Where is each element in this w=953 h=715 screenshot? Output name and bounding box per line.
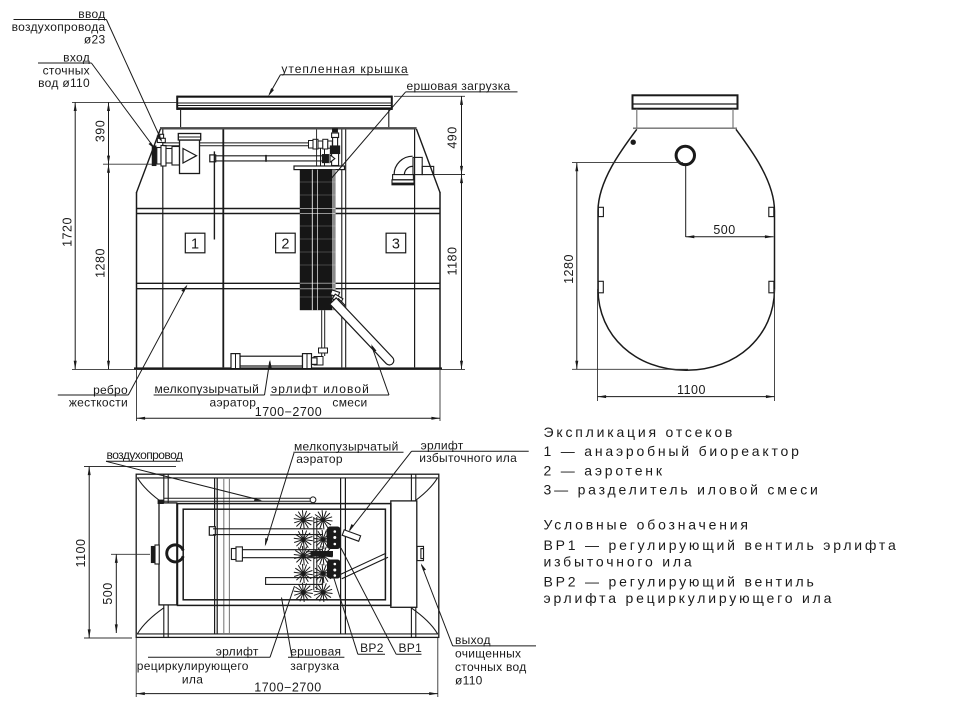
svg-text:1700−2700: 1700−2700: [255, 405, 322, 419]
svg-text:ершовая загрузка: ершовая загрузка: [407, 79, 511, 93]
svg-text:3— разделитель иловой смеси: 3— разделитель иловой смеси: [544, 482, 821, 498]
svg-text:2 — аэротенк: 2 — аэротенк: [544, 462, 665, 478]
svg-text:ввод: ввод: [78, 7, 105, 21]
svg-text:аэратор: аэратор: [296, 452, 343, 466]
svg-text:ø23: ø23: [84, 32, 106, 46]
svg-text:Условные обозначения: Условные обозначения: [544, 517, 751, 533]
svg-text:эрлифт иловой: эрлифт иловой: [271, 382, 370, 396]
svg-text:ВР1: ВР1: [399, 641, 423, 655]
svg-text:аэратор: аэратор: [210, 395, 257, 409]
svg-text:1280: 1280: [94, 248, 108, 278]
svg-text:500: 500: [713, 223, 735, 237]
svg-text:сточных вод: сточных вод: [455, 660, 527, 674]
svg-text:3: 3: [392, 237, 400, 253]
svg-text:1100: 1100: [74, 539, 88, 568]
svg-text:1280: 1280: [562, 254, 576, 284]
svg-text:1720: 1720: [61, 217, 75, 247]
svg-text:мелкопузырчатый: мелкопузырчатый: [155, 382, 260, 396]
svg-text:1100: 1100: [677, 383, 706, 397]
svg-text:вод ø110: вод ø110: [38, 76, 90, 90]
svg-text:1: 1: [191, 237, 199, 253]
svg-text:390: 390: [94, 120, 108, 142]
svg-text:очищенных: очищенных: [455, 647, 521, 661]
svg-text:ВР2: ВР2: [360, 641, 384, 655]
svg-text:выход: выход: [455, 633, 491, 647]
svg-text:ø110: ø110: [455, 674, 483, 688]
svg-text:избыточного ила: избыточного ила: [544, 554, 695, 570]
svg-text:2: 2: [281, 237, 289, 253]
svg-text:избыточного ила: избыточного ила: [419, 451, 517, 465]
svg-text:1180: 1180: [446, 247, 460, 276]
svg-text:ершовая: ершовая: [290, 644, 341, 658]
svg-text:смеси: смеси: [332, 395, 367, 409]
svg-text:рециркулирующего: рециркулирующего: [137, 659, 249, 673]
svg-text:1 — анаэробный биореактор: 1 — анаэробный биореактор: [544, 443, 802, 459]
svg-text:500: 500: [101, 582, 115, 604]
svg-text:Экспликация отсеков: Экспликация отсеков: [544, 424, 736, 440]
svg-text:загрузка: загрузка: [290, 659, 339, 673]
svg-text:1700−2700: 1700−2700: [254, 681, 321, 695]
svg-text:ила: ила: [182, 672, 203, 686]
svg-text:ВР1 — регулирующий вентиль: ВР1 — регулирующий вентиль эрлифта: [544, 537, 899, 553]
svg-text:эрлифта рециркулирующего ила: эрлифта рециркулирующего ила: [544, 590, 835, 606]
svg-text:воздухопровод: воздухопровод: [107, 448, 183, 462]
svg-text:490: 490: [446, 126, 460, 148]
svg-text:утепленная крышка: утепленная крышка: [281, 62, 408, 76]
svg-text:ВР2 — регулирующий вентиль: ВР2 — регулирующий вентиль: [544, 573, 817, 589]
svg-text:эрлифт: эрлифт: [216, 644, 259, 658]
svg-text:жесткости: жесткости: [69, 396, 128, 410]
